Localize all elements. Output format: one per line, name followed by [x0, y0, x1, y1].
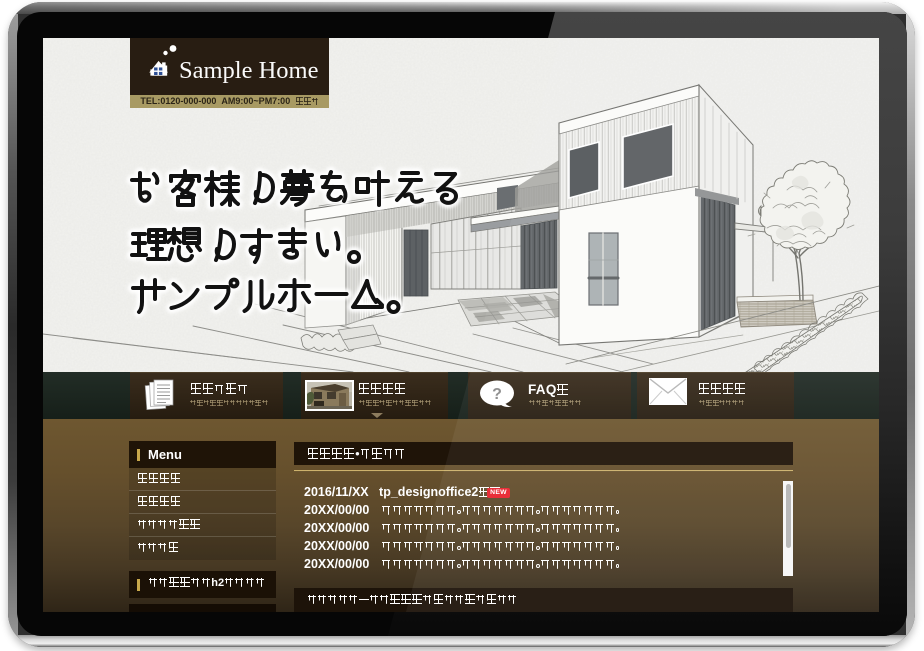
svg-text:Sample Home: Sample Home: [179, 57, 319, 84]
svg-text:?: ?: [492, 386, 502, 403]
